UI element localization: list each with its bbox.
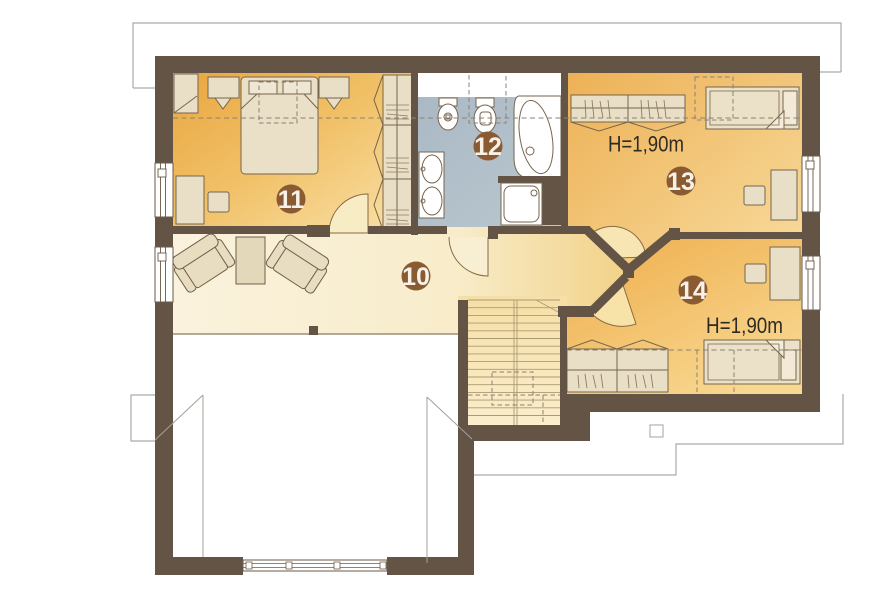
svg-text:H=1,90m: H=1,90m [608,132,684,157]
svg-text:13: 13 [667,168,695,196]
svg-text:12: 12 [474,133,502,161]
svg-text:H=1,90m: H=1,90m [706,313,783,338]
svg-text:10: 10 [402,263,430,291]
svg-text:14: 14 [679,277,707,305]
svg-text:11: 11 [278,186,305,214]
